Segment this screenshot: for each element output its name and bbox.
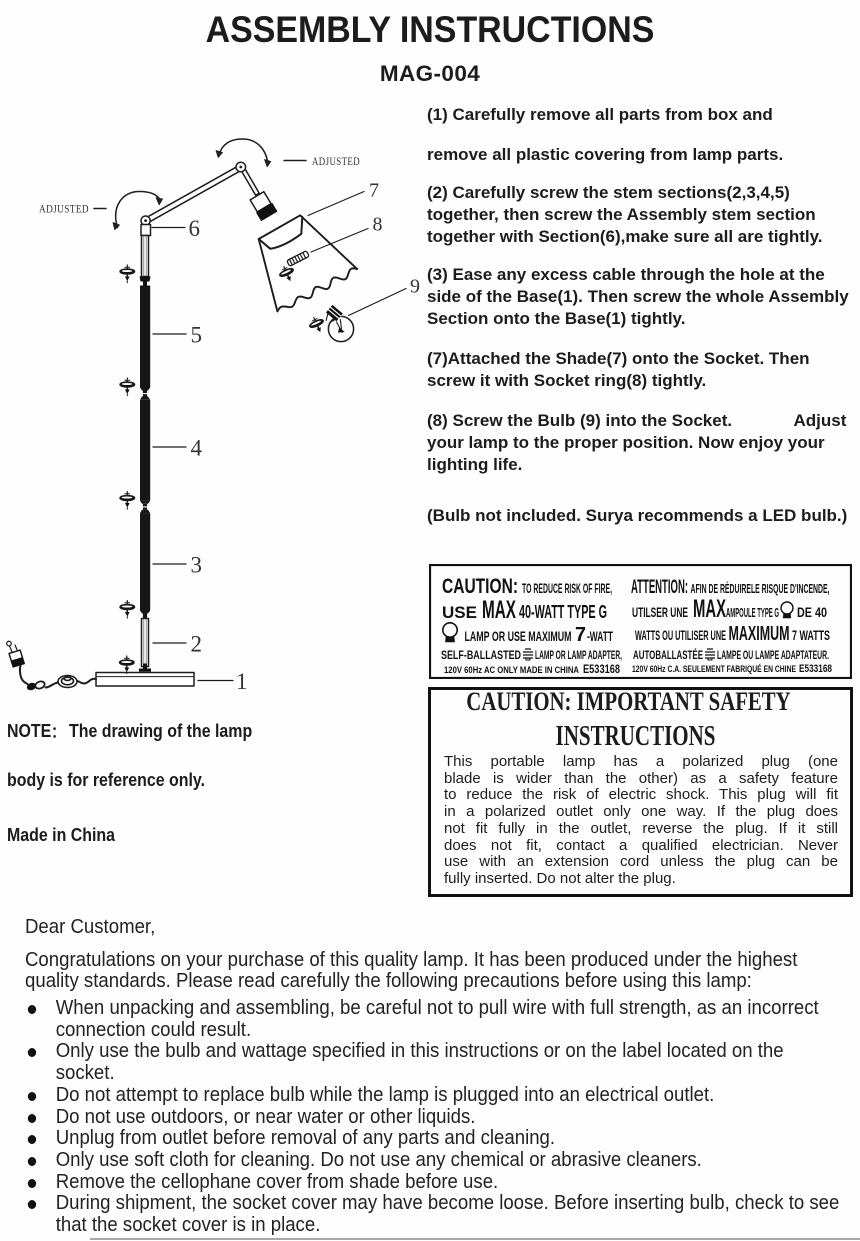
svg-text:7: 7 [369,180,379,202]
svg-text:MAX: MAX [482,596,516,624]
svg-text:3: 3 [191,553,203,578]
svg-text:MAXIMUM: MAXIMUM [729,623,790,645]
svg-text:9: 9 [410,276,420,298]
svg-text:E533168: E533168 [799,663,832,675]
svg-text:MAX: MAX [693,595,726,623]
svg-text:AFIN DE RÉDUIRELE RISQUE D'INC: AFIN DE RÉDUIRELE RISQUE D'INCENDE, [691,581,830,596]
svg-text:UTILSER UNE: UTILSER UNE [632,604,688,620]
svg-text:E533168: E533168 [583,664,620,676]
svg-text:2: 2 [191,632,203,657]
svg-text:LAMP OR USE MAXIMUM: LAMP OR USE MAXIMUM [465,628,572,644]
svg-text:ATTENTION:: ATTENTION: [631,577,688,598]
svg-text:40-WATT TYPE G: 40-WATT TYPE G [519,602,607,622]
svg-text:ADJUSTED: ADJUSTED [312,156,360,168]
svg-text:AUTOBALLASTÉE: AUTOBALLASTÉE [633,647,703,662]
svg-text:WATTS OU UTILISER UNE: WATTS OU UTILISER UNE [635,628,726,643]
svg-text:5: 5 [191,323,203,348]
svg-text:120V 60Hz C.A. SEULEMENT FABRI: 120V 60Hz C.A. SEULEMENT FABRIQUÉ EN CHI… [632,664,796,675]
svg-text:SELF-BALLASTED: SELF-BALLASTED [441,648,521,662]
svg-text:8: 8 [373,214,383,236]
svg-text:7 WATTS: 7 WATTS [792,627,830,643]
svg-text:LAMPE OU LAMPE ADAPTATEUR.: LAMPE OU LAMPE ADAPTATEUR. [717,648,829,662]
svg-text:-WATT: -WATT [587,628,613,644]
svg-text:120V 60Hz AC ONLY MADE IN CHIN: 120V 60Hz AC ONLY MADE IN CHINA [444,665,579,676]
svg-text:CAUTION:: CAUTION: [442,575,518,598]
svg-text:DE 40: DE 40 [797,604,827,620]
svg-text:6: 6 [189,216,201,241]
svg-text:ADJUSTED: ADJUSTED [39,204,89,216]
svg-text:AMPOULE TYPE G: AMPOULE TYPE G [726,605,779,620]
svg-text:USE: USE [442,603,477,622]
svg-text:LAMP OR LAMP ADAPTER,: LAMP OR LAMP ADAPTER, [535,648,622,662]
svg-text:1: 1 [236,669,248,694]
svg-text:4: 4 [191,436,203,461]
svg-text:7: 7 [575,624,586,646]
svg-text:TO REDUCE RISK OF FIRE,: TO REDUCE RISK OF FIRE, [522,581,612,596]
